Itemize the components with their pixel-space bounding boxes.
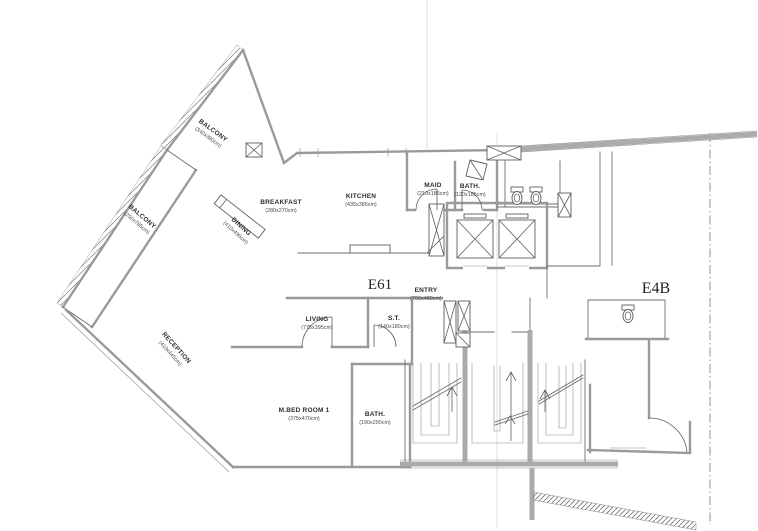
room-name: BATH.	[460, 183, 480, 190]
room-dims: (210x185cm)	[417, 191, 449, 197]
room-dims: (280x270cm)	[265, 208, 297, 214]
room-dims: (140x180cm)	[378, 324, 410, 330]
unit-label-e4b: E4B	[642, 280, 670, 297]
room-name: ENTRY	[415, 287, 438, 294]
room-label-reception: RECEPTION (410x445cm)	[154, 331, 192, 371]
room-dims: (375x470cm)	[288, 416, 320, 422]
room-label-kitchen: KITCHEN (435x385cm)	[345, 193, 377, 208]
staircase-core	[400, 330, 696, 530]
floor-plan-scan: BALCONY (340x380cm) BALCONY (250x785cm) …	[0, 0, 758, 531]
elevator-shafts	[457, 214, 535, 271]
room-name: MAID	[424, 182, 442, 189]
room-label-master-bedroom: M.BED ROOM 1 (375x470cm)	[279, 407, 330, 422]
unit-label-e61: E61	[368, 277, 392, 293]
floor-plan-canvas: BALCONY (340x380cm) BALCONY (250x785cm) …	[0, 0, 758, 531]
room-name: BATH.	[365, 411, 385, 418]
toilet-icon	[622, 305, 634, 323]
buffet-counter	[214, 195, 265, 238]
room-name: S.T.	[388, 315, 400, 322]
room-dims: (120x185cm)	[454, 192, 486, 198]
door-arc	[649, 418, 687, 452]
room-dims: (775x395cm)	[301, 325, 333, 331]
room-label-breakfast: BREAKFAST (280x270cm)	[260, 199, 302, 214]
room-labels: BALCONY (340x380cm) BALCONY (250x785cm) …	[122, 118, 671, 426]
room-label-entry: ENTRY (700x480cm)	[410, 287, 442, 302]
room-label-st: S.T. (140x180cm)	[378, 315, 410, 330]
room-name: BREAKFAST	[260, 199, 302, 206]
room-label-balcony-left: BALCONY (250x785cm)	[122, 203, 158, 236]
room-name: LIVING	[306, 316, 329, 323]
kitchen-counter	[350, 245, 390, 253]
room-name: M.BED ROOM 1	[279, 407, 330, 414]
ramp-hatch	[533, 492, 696, 530]
toilet-icon	[511, 187, 523, 205]
walls	[61, 50, 757, 472]
room-name: KITCHEN	[346, 193, 376, 200]
room-dims: (700x480cm)	[410, 296, 442, 302]
room-dims: (190x290cm)	[359, 420, 391, 426]
room-label-balcony-top: BALCONY (340x380cm)	[193, 118, 229, 150]
room-label-bath-bottom: BATH. (190x290cm)	[359, 411, 391, 426]
room-label-bath-top: BATH. (120x185cm)	[454, 183, 486, 198]
scan-artifact-lines	[427, 0, 710, 528]
toilet-icon	[530, 187, 542, 205]
room-dims: (435x385cm)	[345, 202, 377, 208]
room-label-living: LIVING (775x395cm)	[301, 316, 333, 331]
